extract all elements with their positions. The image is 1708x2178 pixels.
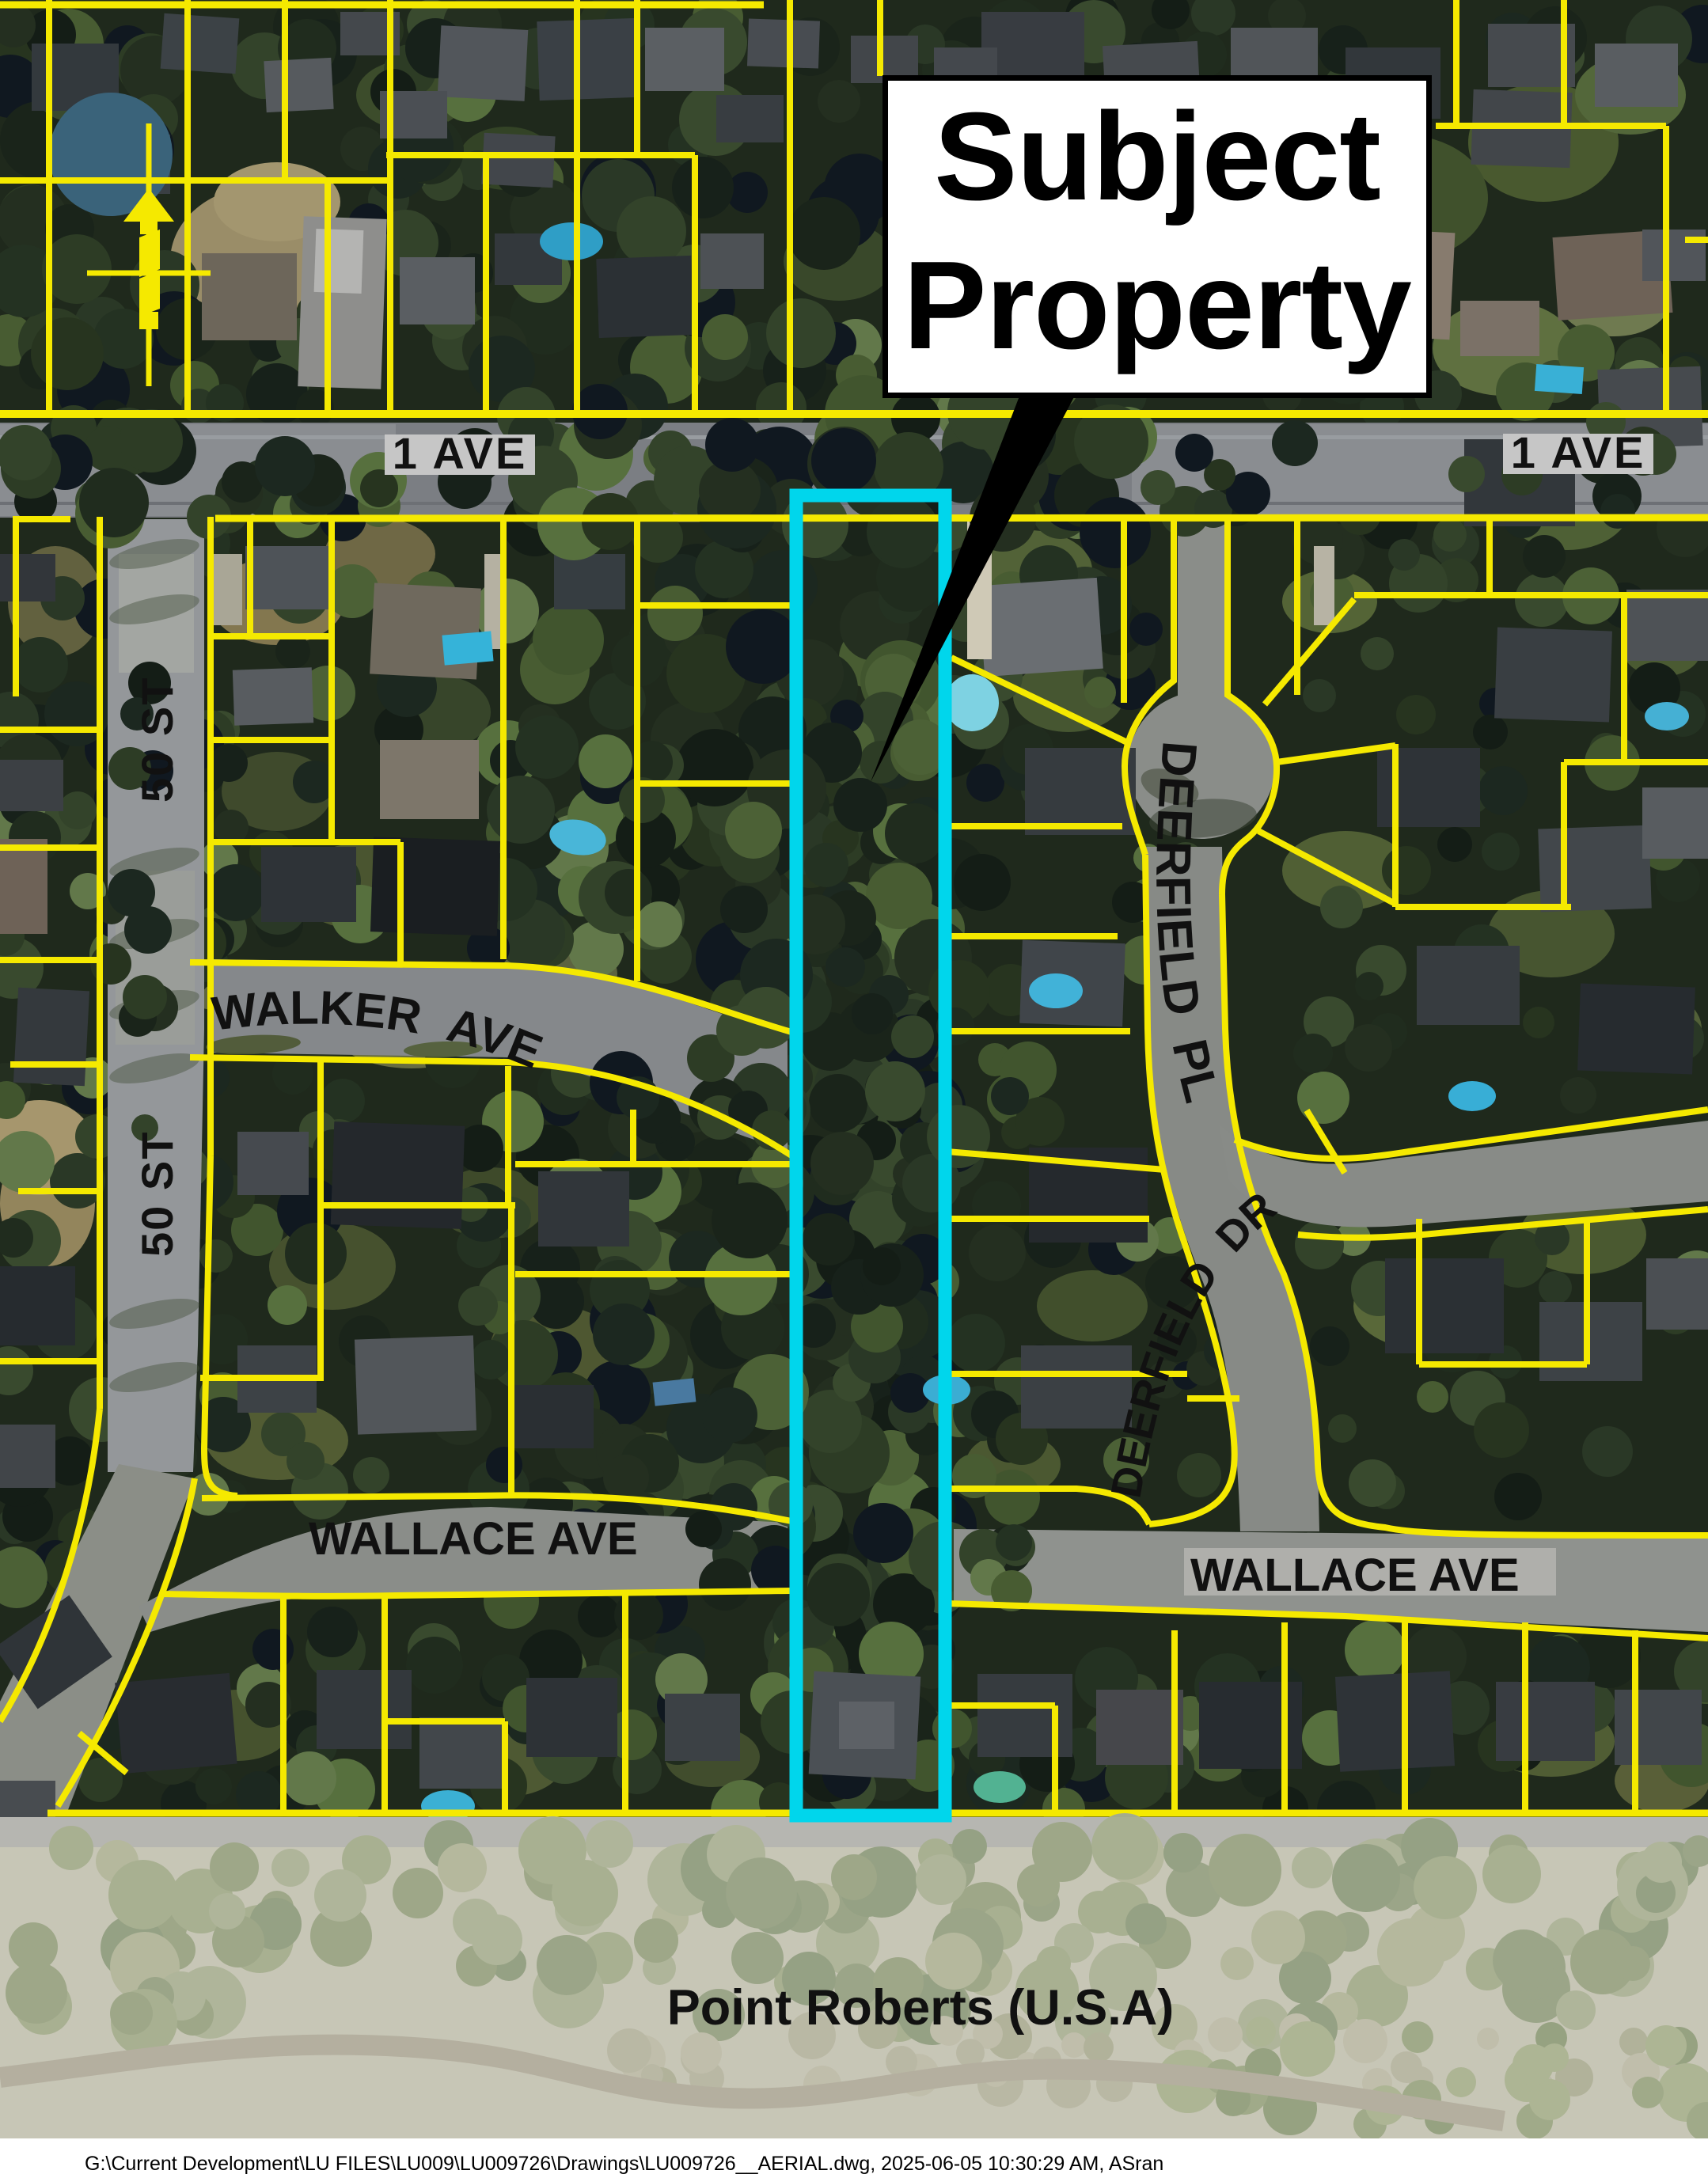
svg-text:1 AVE: 1 AVE	[1511, 427, 1646, 477]
svg-text:50 ST: 50 ST	[132, 677, 182, 803]
svg-text:WALLACE AVE: WALLACE AVE	[309, 1513, 638, 1565]
svg-text:Point Roberts (U.S.A): Point Roberts (U.S.A)	[667, 1980, 1175, 2036]
svg-text:Property: Property	[903, 236, 1412, 375]
svg-text:WALLACE AVE: WALLACE AVE	[1190, 1550, 1520, 1601]
svg-text:50 ST: 50 ST	[132, 1131, 182, 1257]
svg-text:1 AVE: 1 AVE	[393, 428, 528, 478]
svg-text:G:\Current Development\LU FILE: G:\Current Development\LU FILES\LU009\LU…	[85, 2153, 1163, 2175]
svg-text:Subject: Subject	[934, 87, 1380, 226]
